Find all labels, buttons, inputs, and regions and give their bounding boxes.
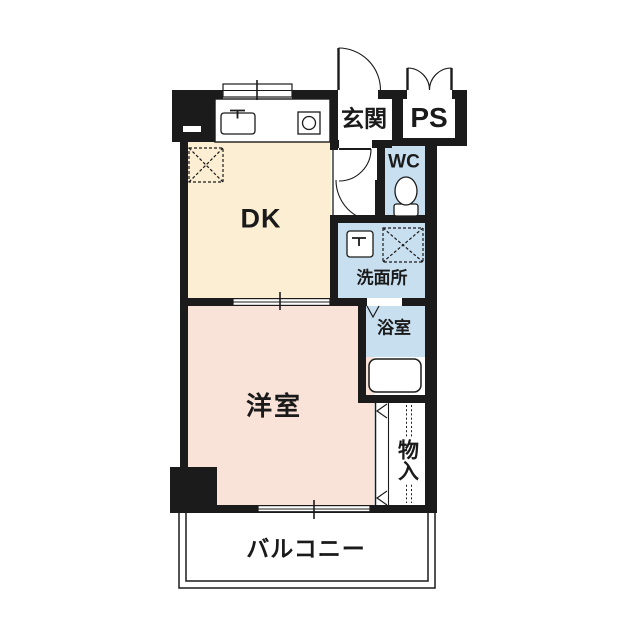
room-label-washroom: 洗面所	[357, 270, 408, 287]
room-label-dk: DK	[241, 206, 282, 233]
closet-door-chevrons-icon	[377, 404, 387, 505]
ps-doors-icon	[408, 68, 452, 90]
floor-plan: DK 玄関 PS WC 洗面所 浴室 洋室 物入 バルコニー	[0, 0, 640, 640]
room-label-storage: 物入	[397, 437, 418, 483]
room-label-balcony: バルコニー	[246, 538, 366, 561]
toilet-icon	[394, 177, 418, 216]
room-label-pipe-space: PS	[410, 104, 447, 132]
room-label-western-room: 洋室	[246, 393, 302, 419]
corner-pillar-top	[172, 90, 215, 142]
kitchen-window-icon	[223, 80, 292, 100]
washbasin-icon	[347, 231, 373, 257]
entry-door-icon	[339, 48, 381, 90]
wall-vent-mark	[183, 126, 201, 132]
room-label-bathroom: 浴室	[377, 320, 411, 337]
hall-door-icons	[336, 149, 376, 221]
bathtub-icon	[369, 359, 421, 392]
room-label-wc: WC	[388, 153, 420, 172]
room-label-entrance: 玄関	[341, 108, 387, 131]
